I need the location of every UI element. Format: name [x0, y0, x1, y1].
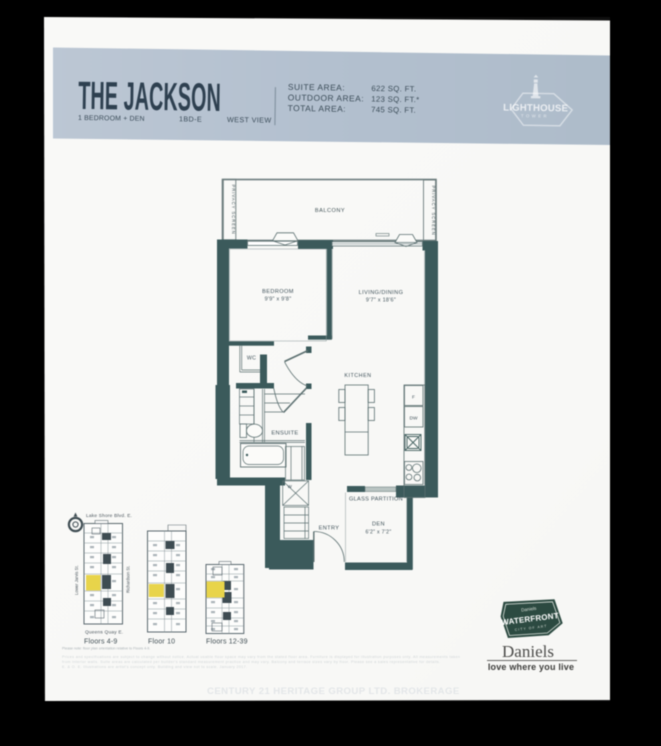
svg-text:1BD-E: 1BD-E [179, 114, 202, 123]
svg-text:OUTDOOR AREA:: OUTDOOR AREA: [288, 92, 364, 103]
svg-text:Please note: floor plan orient: Please note: floor plan orientation rela… [62, 647, 150, 651]
svg-text:TOWER: TOWER [521, 113, 549, 118]
svg-text:123 SQ. FT.*: 123 SQ. FT.* [371, 95, 419, 105]
svg-text:W: W [288, 484, 293, 489]
svg-text:Floors 12-39: Floors 12-39 [206, 639, 248, 646]
svg-text:F: F [412, 395, 415, 401]
svg-text:BALCONY: BALCONY [315, 208, 345, 214]
svg-text:9'7" x 18'6": 9'7" x 18'6" [366, 298, 396, 304]
svg-text:DEN: DEN [372, 522, 385, 528]
svg-text:KITCHEN: KITCHEN [344, 373, 371, 379]
svg-text:CENTURY 21 HERITAGE GROUP LTD.: CENTURY 21 HERITAGE GROUP LTD. BROKERAGE [207, 686, 460, 697]
svg-text:745 SQ. FT.: 745 SQ. FT. [371, 105, 416, 115]
svg-text:ENTRY: ENTRY [319, 526, 340, 532]
svg-text:622 SQ. FT.: 622 SQ. FT. [371, 84, 416, 94]
svg-text:Queens Quay E.: Queens Quay E. [85, 630, 123, 636]
svg-text:BEDROOM: BEDROOM [262, 289, 294, 295]
svg-text:Floor 10: Floor 10 [148, 639, 175, 646]
svg-text:E. & O. E. Illustrations are a: E. & O. E. Illustrations are artist's co… [62, 665, 247, 669]
svg-text:from interior walls. Suite are: from interior walls. Suite areas are cal… [62, 660, 441, 664]
svg-text:PRIVACY SCREEN: PRIVACY SCREEN [231, 185, 236, 235]
svg-text:PRIVACY SCREEN: PRIVACY SCREEN [431, 186, 436, 236]
svg-text:Prices and specifications are: Prices and specifications are subject to… [62, 655, 460, 659]
svg-text:9'9" x 9'8": 9'9" x 9'8" [265, 297, 292, 303]
svg-text:Daniels: Daniels [502, 642, 554, 661]
svg-text:DW: DW [410, 416, 418, 422]
svg-text:WC: WC [247, 356, 256, 362]
svg-text:Richardson St.: Richardson St. [126, 566, 131, 593]
svg-text:ENSUITE: ENSUITE [271, 431, 298, 437]
svg-text:6'2" x 7'2": 6'2" x 7'2" [366, 530, 392, 536]
svg-text:WEST VIEW: WEST VIEW [227, 115, 272, 125]
svg-text:Lower Jarvis St.: Lower Jarvis St. [74, 565, 79, 595]
svg-text:Floors 4-9: Floors 4-9 [84, 639, 118, 646]
svg-text:1 BEDROOM + DEN: 1 BEDROOM + DEN [78, 115, 145, 123]
svg-text:Lake Shore Blvd. E.: Lake Shore Blvd. E. [86, 513, 132, 519]
svg-text:TOTAL AREA:: TOTAL AREA: [288, 103, 347, 114]
svg-text:GLASS PARTITION: GLASS PARTITION [349, 497, 403, 503]
svg-text:THE JACKSON: THE JACKSON [78, 73, 221, 119]
svg-text:love where you live: love where you live [488, 662, 574, 672]
svg-text:SUITE AREA:: SUITE AREA: [288, 82, 345, 93]
svg-text:LIVING/DINING: LIVING/DINING [359, 290, 404, 296]
